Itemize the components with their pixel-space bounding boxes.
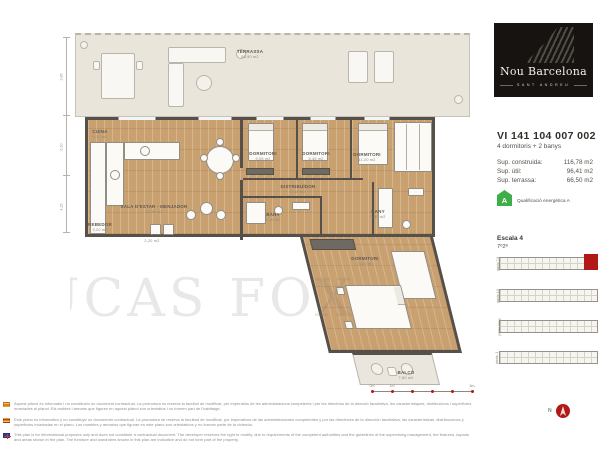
coffee-table-symbol bbox=[200, 202, 213, 215]
brand-name: Nou Barcelona bbox=[494, 65, 593, 78]
unit-code: VI 141 104 007 002 bbox=[497, 130, 596, 142]
dimension-tick bbox=[63, 115, 70, 116]
area-label: Sup. terrassa: bbox=[497, 177, 536, 184]
wardrobe-symbol bbox=[246, 168, 274, 175]
area-row-terrassa: Sup. terrassa: 66,50 m2 bbox=[497, 177, 593, 184]
dimension-label: 6,10 bbox=[60, 144, 64, 151]
energy-rating-icon: A bbox=[497, 190, 512, 206]
dimension-tick bbox=[63, 175, 70, 176]
scale-dot bbox=[451, 390, 454, 393]
disclaimer-text: This plan is for informational purposes … bbox=[14, 432, 473, 442]
brand-subtitle: SANT ANDREU bbox=[517, 83, 570, 87]
window-symbol bbox=[198, 117, 232, 120]
room-label-dormitori-1: DORMITORI9,05 m2 bbox=[249, 151, 276, 161]
keyplan-strip-3: planta baixa bbox=[499, 320, 598, 333]
scale-bar: 0m 1m 5m bbox=[372, 391, 473, 392]
outdoor-table-symbol bbox=[101, 53, 135, 99]
outdoor-sofa-symbol bbox=[168, 63, 184, 107]
plant-symbol bbox=[80, 41, 88, 49]
room-label-terrassa: TERRASSA58,90 m2 bbox=[237, 49, 263, 59]
scale-dot bbox=[371, 390, 374, 393]
sink-symbol bbox=[140, 146, 150, 156]
window-symbol bbox=[118, 117, 156, 120]
area-row-util: Sup. útil: 96,41 m2 bbox=[497, 168, 593, 175]
kitchen-cabinet-symbol bbox=[90, 142, 106, 234]
balcony-chair-symbol bbox=[369, 363, 384, 375]
chair-symbol bbox=[232, 154, 240, 162]
divider-line bbox=[574, 85, 587, 86]
scale-dot bbox=[411, 390, 414, 393]
dimension-tick bbox=[63, 232, 70, 233]
room-label-sala: SALA D'ESTAR - MENJADOR28,35 m2 bbox=[121, 204, 188, 214]
coffee-table-symbol bbox=[196, 75, 212, 91]
window-symbol bbox=[310, 117, 336, 120]
bed-symbol bbox=[345, 285, 412, 329]
closet-symbol bbox=[394, 122, 432, 172]
north-label: N bbox=[548, 408, 552, 414]
room-label-distribuidor: DISTRIBUÏDOR5,10 m2 bbox=[281, 184, 316, 194]
nightstand-symbol bbox=[344, 321, 354, 329]
chair-symbol bbox=[216, 138, 224, 146]
balcony-area bbox=[352, 353, 440, 385]
terrace-area bbox=[75, 33, 470, 117]
area-label: Sup. construida: bbox=[497, 159, 543, 166]
wardrobe-symbol bbox=[309, 239, 356, 250]
keyplan-strip-4: planta -1 bbox=[499, 351, 598, 364]
balcony-table-symbol bbox=[386, 367, 397, 376]
window-symbol bbox=[256, 117, 284, 120]
keyplan-strip-label: planta 7-8 bbox=[496, 256, 500, 270]
corridor-wall bbox=[243, 178, 363, 180]
outdoor-chair-symbol bbox=[136, 61, 143, 70]
scale-dot bbox=[391, 390, 394, 393]
scale-label: 1m bbox=[390, 384, 395, 388]
disclaimer-en: This plan is for informational purposes … bbox=[3, 432, 473, 442]
room-label-dormitori-4: DORMITORI13,60 m2 bbox=[351, 256, 378, 266]
keyplan-strip-label: planta 1-6 bbox=[496, 288, 500, 302]
floorplan-sheet: LUCAS FOX TERRASSA58,90 m2 CUINA9,10 m2 … bbox=[0, 0, 600, 450]
energy-letter: A bbox=[502, 196, 507, 207]
pillow-symbol bbox=[249, 124, 273, 131]
sunbed-symbol bbox=[374, 51, 394, 83]
brand-subtitle-row: SANT ANDREU bbox=[494, 83, 593, 87]
area-label: Sup. útil: bbox=[497, 168, 522, 175]
partition-wall bbox=[240, 120, 243, 168]
room-label-bany-1: BANY4,10 m2 bbox=[265, 212, 280, 222]
info-sidebar: Nou Barcelona SANT ANDREU VI 141 104 007… bbox=[486, 0, 600, 400]
scale-label: 5m bbox=[470, 384, 475, 388]
nightstand-symbol bbox=[335, 287, 345, 295]
chair-symbol bbox=[216, 172, 224, 180]
disclaimer-text: Este plano es informativo y no constituy… bbox=[14, 417, 473, 427]
outdoor-sofa-symbol bbox=[168, 47, 226, 63]
room-label-safareig: SAFAREIG2,20 m2 bbox=[140, 233, 165, 243]
room-label-bany-2: BANY3,50 m2 bbox=[370, 209, 385, 219]
washbasin-symbol bbox=[408, 188, 424, 196]
floor-plan: LUCAS FOX TERRASSA58,90 m2 CUINA9,10 m2 … bbox=[60, 25, 480, 395]
closet-shelf bbox=[406, 124, 407, 170]
room-label-dormitori-2: DORMITORI8,45 m2 bbox=[302, 151, 329, 161]
disclaimer-text: Aquest plànol és informatiu i no constit… bbox=[14, 401, 473, 411]
pillow-symbol bbox=[303, 124, 327, 131]
armchair-symbol bbox=[216, 210, 226, 220]
bedroom-wing bbox=[300, 237, 462, 353]
dimension-tick bbox=[63, 37, 70, 38]
closet-shelf bbox=[419, 124, 420, 170]
energy-rating-label: Qualificació energètica A bbox=[517, 199, 570, 204]
divider-line bbox=[500, 85, 513, 86]
plant-symbol bbox=[454, 95, 463, 104]
unit-highlight bbox=[584, 254, 598, 270]
disclaimer-es: Este plano es informativo y no constituy… bbox=[3, 417, 473, 427]
area-value: 96,41 m2 bbox=[567, 168, 593, 175]
window-symbol bbox=[364, 117, 390, 120]
outdoor-chair-symbol bbox=[93, 61, 100, 70]
kitchen-counter-symbol bbox=[124, 142, 180, 160]
spain-flag-icon bbox=[3, 418, 10, 423]
keyplan-strip-1: planta 7-8 bbox=[499, 257, 598, 270]
floor-door-label: 7º2ª bbox=[497, 244, 508, 250]
area-value: 66,50 m2 bbox=[567, 177, 593, 184]
room-label-balco: BALCÓ7,60 m2 bbox=[398, 370, 415, 380]
disclaimer-ca: Aquest plànol és informatiu i no constit… bbox=[3, 401, 473, 411]
unit-summary: 4 dormitoris + 2 banys bbox=[497, 143, 561, 150]
dimension-line bbox=[66, 37, 67, 232]
building-logo-icon bbox=[522, 27, 574, 63]
toilet-symbol bbox=[402, 220, 411, 229]
uk-flag-icon bbox=[3, 433, 10, 438]
catalonia-flag-icon bbox=[3, 402, 10, 407]
scale-dot bbox=[471, 390, 474, 393]
partition-wall bbox=[240, 180, 243, 240]
washbasin-symbol bbox=[292, 202, 310, 210]
dimension-label: 3,85 bbox=[60, 74, 64, 81]
chair-symbol bbox=[200, 154, 208, 162]
pillow-symbol bbox=[359, 124, 387, 131]
partition-wall bbox=[350, 120, 352, 178]
brand-logo: Nou Barcelona SANT ANDREU bbox=[494, 23, 593, 97]
room-label-dormitori-3: DORMITORI11,20 m2 bbox=[353, 152, 380, 162]
bath-wall bbox=[243, 196, 321, 198]
shower-symbol bbox=[246, 202, 266, 224]
stove-symbol bbox=[110, 170, 120, 180]
keyplan-strip-label: planta -1 bbox=[495, 351, 499, 363]
keyplan-strip-2: planta 1-6 bbox=[499, 289, 598, 302]
keyplan-strip-label: planta baixa bbox=[498, 318, 502, 335]
room-label-cuina: CUINA9,10 m2 bbox=[92, 129, 107, 139]
wardrobe-symbol bbox=[302, 168, 330, 175]
scale-label: 0m bbox=[370, 384, 375, 388]
area-row-construida: Sup. construida: 116,78 m2 bbox=[497, 159, 593, 166]
sunbed-symbol bbox=[348, 51, 368, 83]
bathtub-symbol bbox=[378, 188, 393, 228]
partition-wall bbox=[296, 120, 298, 178]
compass-icon bbox=[556, 404, 570, 418]
area-value: 116,78 m2 bbox=[564, 159, 593, 166]
armchair-symbol bbox=[186, 210, 196, 220]
bath-wall bbox=[320, 196, 322, 240]
dining-table-symbol bbox=[206, 146, 234, 174]
dimension-label: 4,25 bbox=[60, 204, 64, 211]
scale-dot bbox=[431, 390, 434, 393]
room-label-rebedor: REBEDOR3,20 m2 bbox=[88, 222, 112, 232]
escala-label: Escala 4 bbox=[497, 235, 523, 242]
